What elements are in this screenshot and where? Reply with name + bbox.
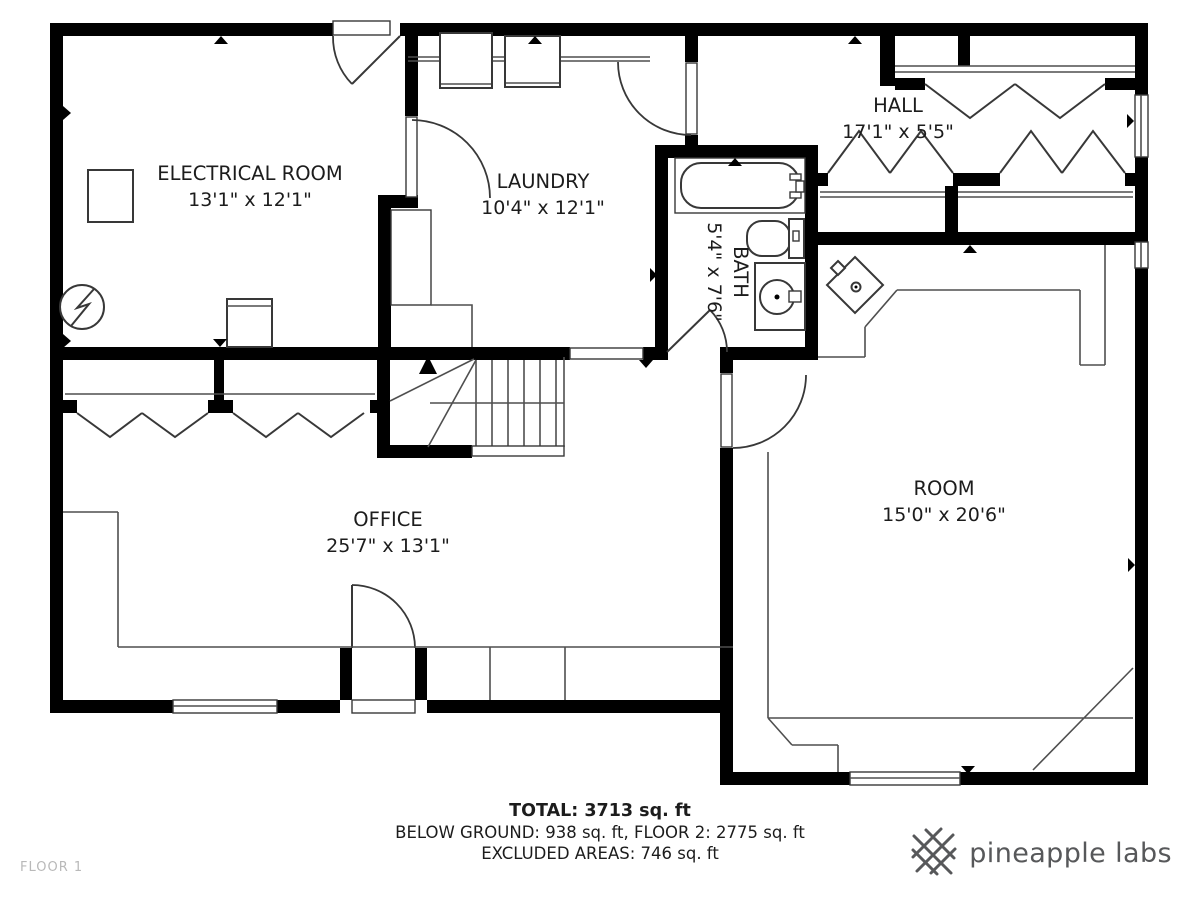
room-name: ELECTRICAL ROOM [157, 161, 342, 187]
room-dims: 25'7" x 13'1" [326, 533, 450, 559]
electrical-panel [88, 170, 133, 222]
pineapple-labs-logo-icon [909, 826, 959, 880]
room-label-office: OFFICE 25'7" x 13'1" [326, 507, 450, 559]
room-dims: 13'1" x 12'1" [157, 187, 342, 213]
hall-window [1135, 95, 1148, 157]
stair-opening [570, 348, 643, 359]
bathtub [675, 158, 805, 213]
vestibule-door [352, 585, 415, 648]
room-label-laundry: LAUNDRY 10'4" x 12'1" [481, 169, 605, 221]
room-dims: 15'0" x 20'6" [882, 502, 1006, 528]
room-dims: 10'4" x 12'1" [481, 195, 605, 221]
side-window [1135, 242, 1148, 268]
laundry-door [618, 62, 697, 135]
electrical-door [333, 21, 400, 84]
total-area: TOTAL: 3713 sq. ft [0, 800, 1200, 822]
stair-pony-wall [472, 446, 564, 456]
room-name: OFFICE [326, 507, 450, 533]
room-name: LAUNDRY [481, 169, 605, 195]
room-name: ROOM [882, 476, 1006, 502]
divider-door [406, 117, 490, 198]
office-window [173, 700, 277, 713]
electrical-symbol-icon [60, 285, 104, 329]
room-dims: 5'4" x 7'6" [701, 222, 727, 322]
brand-name: pineapple labs [969, 838, 1172, 869]
room-label-electrical: ELECTRICAL ROOM 13'1" x 12'1" [157, 161, 342, 213]
branding: pineapple labs [909, 826, 1172, 880]
walkout-opening [352, 700, 415, 713]
toilet [747, 219, 804, 258]
room-label-room: ROOM 15'0" x 20'6" [882, 476, 1006, 528]
room-label-bath: BATH 5'4" x 7'6" [701, 222, 753, 322]
walls [50, 23, 1148, 785]
floor-plan-drawing [0, 0, 1200, 900]
room-dims: 17'1" x 5'5" [842, 119, 954, 145]
washer [440, 33, 492, 88]
stairs [390, 356, 564, 456]
room-window [850, 772, 960, 785]
room-corner-sink [827, 257, 883, 313]
room-door [721, 374, 806, 448]
room-label-hall: HALL 17'1" x 5'5" [842, 93, 954, 145]
floor-label: FLOOR 1 [20, 860, 83, 875]
room-name: BATH [727, 222, 753, 322]
floorplan-page: ELECTRICAL ROOM 13'1" x 12'1" LAUNDRY 10… [0, 0, 1200, 900]
water-heater [227, 299, 272, 347]
bifold-doors [77, 84, 1125, 437]
room-name: HALL [842, 93, 954, 119]
bath-sink [755, 263, 805, 330]
